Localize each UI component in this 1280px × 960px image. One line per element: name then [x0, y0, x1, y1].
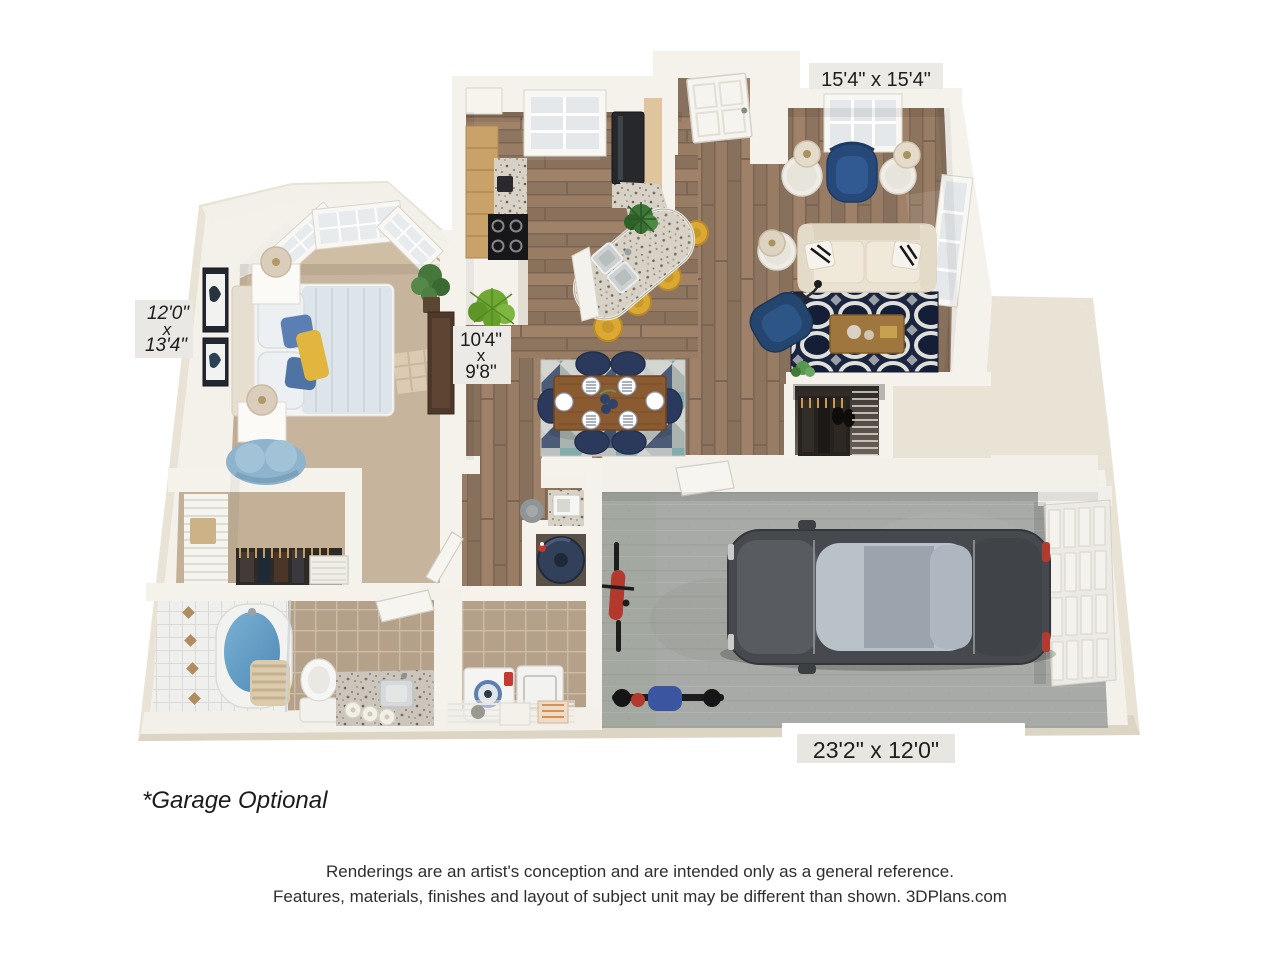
- svg-text:Features, materials, finishes: Features, materials, finishes and layout…: [273, 887, 1007, 906]
- svg-text:*Garage Optional: *Garage Optional: [142, 787, 328, 814]
- svg-text:13'4": 13'4": [145, 335, 188, 356]
- svg-text:23'2" x 12'0": 23'2" x 12'0": [813, 737, 939, 763]
- svg-text:9'8": 9'8": [465, 362, 497, 383]
- svg-text:Renderings are an artist's con: Renderings are an artist's conception an…: [326, 862, 954, 881]
- svg-text:15'4" x 15'4": 15'4" x 15'4": [821, 69, 931, 91]
